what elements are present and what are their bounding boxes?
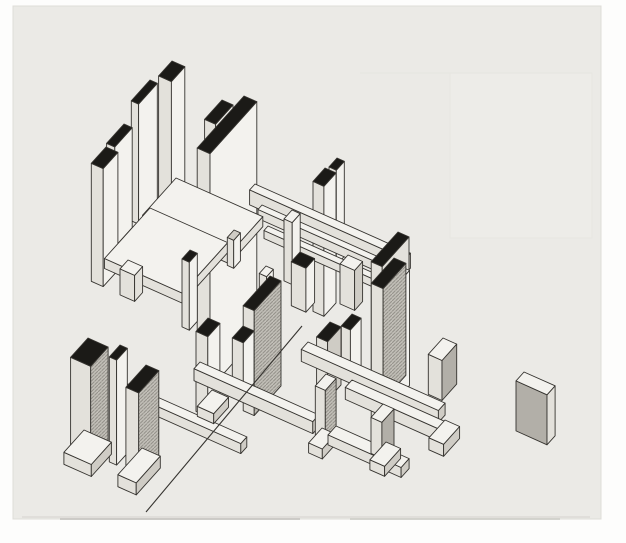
slab-bl-thin	[109, 345, 127, 465]
cube-left	[120, 260, 143, 301]
isolated-block	[516, 372, 555, 445]
axonometric-drawing	[0, 0, 626, 543]
slab-tl-thin	[131, 80, 157, 224]
fin-center-left	[182, 250, 197, 330]
isolated-block-right-face	[547, 386, 555, 445]
block-right-small-left-face	[428, 354, 442, 400]
block-center-right-left-face	[340, 264, 355, 311]
fin-center-left-right-face	[189, 253, 197, 330]
fin-plate-edge-left-face	[227, 237, 233, 268]
block-center-capped	[291, 252, 314, 312]
faint-rect-artifact	[450, 73, 592, 238]
block-center-capped-left-face	[291, 262, 306, 313]
fin-plate-edge	[227, 230, 240, 268]
block-center-right	[340, 255, 363, 310]
scanned-page	[0, 0, 626, 543]
fin-center-left-left-face	[182, 259, 189, 330]
pier-tl-left-left-face	[91, 163, 103, 286]
